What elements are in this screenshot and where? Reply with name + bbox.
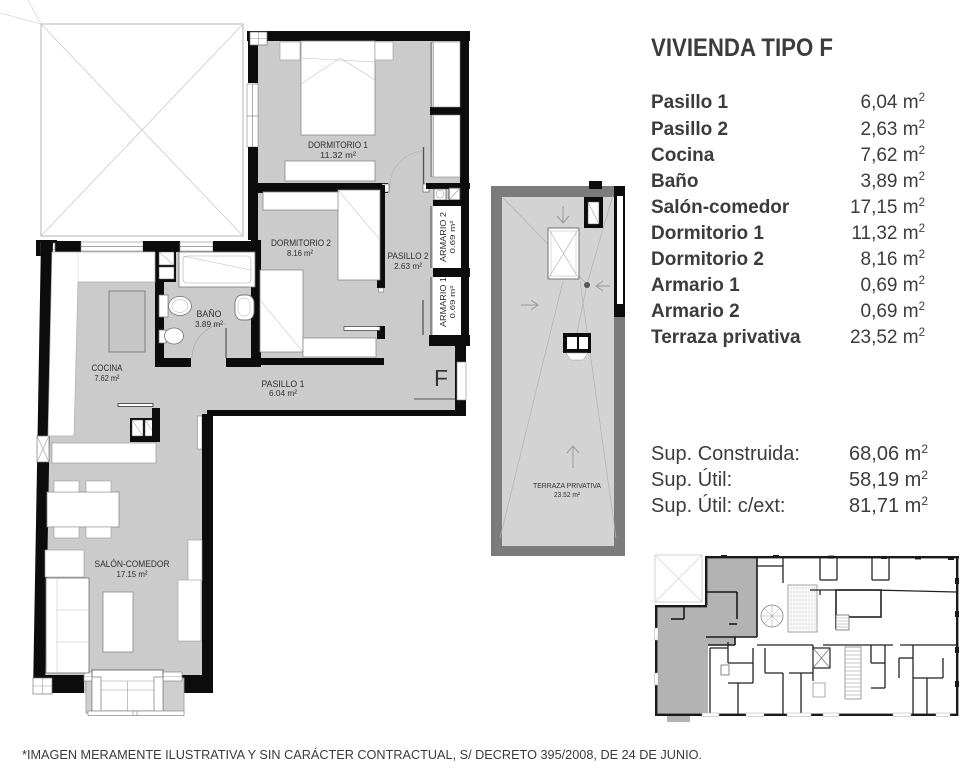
svg-text:0.69 m²: 0.69 m²: [450, 220, 457, 254]
svg-text:ARMARIO 2: ARMARIO 2: [439, 211, 448, 262]
svg-text:81,71 m2: 81,71 m2: [849, 494, 928, 517]
svg-text:DORMITORIO 2: DORMITORIO 2: [271, 238, 331, 248]
svg-text:3,89 m2: 3,89 m2: [861, 171, 926, 192]
svg-text:17,15 m2: 17,15 m2: [850, 197, 925, 218]
svg-text:11.32 m²: 11.32 m²: [320, 150, 356, 160]
svg-text:BAÑO: BAÑO: [197, 309, 222, 319]
svg-text:0.69 m²: 0.69 m²: [450, 285, 457, 319]
svg-text:VIVIENDA TIPO F: VIVIENDA TIPO F: [651, 34, 833, 62]
svg-text:Sup. Útil: c/ext:: Sup. Útil: c/ext:: [651, 494, 786, 517]
svg-text:2,63 m2: 2,63 m2: [861, 119, 926, 140]
svg-text:Dormitorio 2: Dormitorio 2: [651, 249, 764, 270]
svg-text:TERRAZA PRIVATIVA: TERRAZA PRIVATIVA: [533, 481, 601, 490]
svg-text:Pasillo 1: Pasillo 1: [651, 92, 729, 113]
svg-text:ARMARIO 1: ARMARIO 1: [439, 276, 448, 327]
svg-text:Terraza privativa: Terraza privativa: [651, 327, 801, 348]
svg-text:PASILLO 2: PASILLO 2: [388, 251, 429, 261]
svg-text:*IMAGEN MERAMENTE ILUSTRATIVA: *IMAGEN MERAMENTE ILUSTRATIVA Y SIN CARÁ…: [22, 747, 702, 762]
svg-text:7.62 m²: 7.62 m²: [95, 373, 120, 383]
svg-text:Baño: Baño: [651, 171, 699, 192]
svg-text:2.63 m²: 2.63 m²: [394, 261, 422, 271]
svg-text:F: F: [434, 365, 448, 391]
svg-text:17.15 m²: 17.15 m²: [117, 569, 148, 579]
svg-text:11,32 m2: 11,32 m2: [851, 223, 925, 244]
svg-text:DORMITORIO 1: DORMITORIO 1: [308, 140, 368, 150]
svg-text:Salón-comedor: Salón-comedor: [651, 197, 790, 218]
svg-text:58,19 m2: 58,19 m2: [849, 468, 928, 491]
svg-text:Armario 1: Armario 1: [651, 275, 740, 296]
svg-text:6,04 m2: 6,04 m2: [861, 92, 926, 113]
svg-text:3.89 m²: 3.89 m²: [195, 319, 223, 329]
svg-text:68,06 m2: 68,06 m2: [849, 442, 928, 465]
svg-text:COCINA: COCINA: [92, 363, 123, 373]
svg-text:23.52 m²: 23.52 m²: [554, 492, 581, 499]
svg-text:0,69 m2: 0,69 m2: [861, 275, 926, 296]
svg-text:Pasillo 2: Pasillo 2: [651, 119, 728, 140]
svg-text:8.16 m²: 8.16 m²: [287, 248, 313, 258]
svg-text:8,16 m2: 8,16 m2: [861, 249, 926, 270]
svg-text:23,52 m2: 23,52 m2: [850, 327, 925, 348]
svg-text:Sup. Útil:: Sup. Útil:: [651, 468, 732, 491]
svg-text:0,69 m2: 0,69 m2: [861, 301, 926, 322]
svg-text:Cocina: Cocina: [651, 145, 715, 166]
svg-text:Armario 2: Armario 2: [651, 301, 740, 322]
svg-text:Sup. Construida:: Sup. Construida:: [651, 443, 800, 465]
svg-text:Dormitorio 1: Dormitorio 1: [651, 223, 764, 244]
svg-text:SALÓN-COMEDOR: SALÓN-COMEDOR: [95, 559, 170, 569]
svg-text:7,62 m2: 7,62 m2: [861, 145, 926, 166]
svg-text:6.04 m²: 6.04 m²: [269, 388, 297, 398]
